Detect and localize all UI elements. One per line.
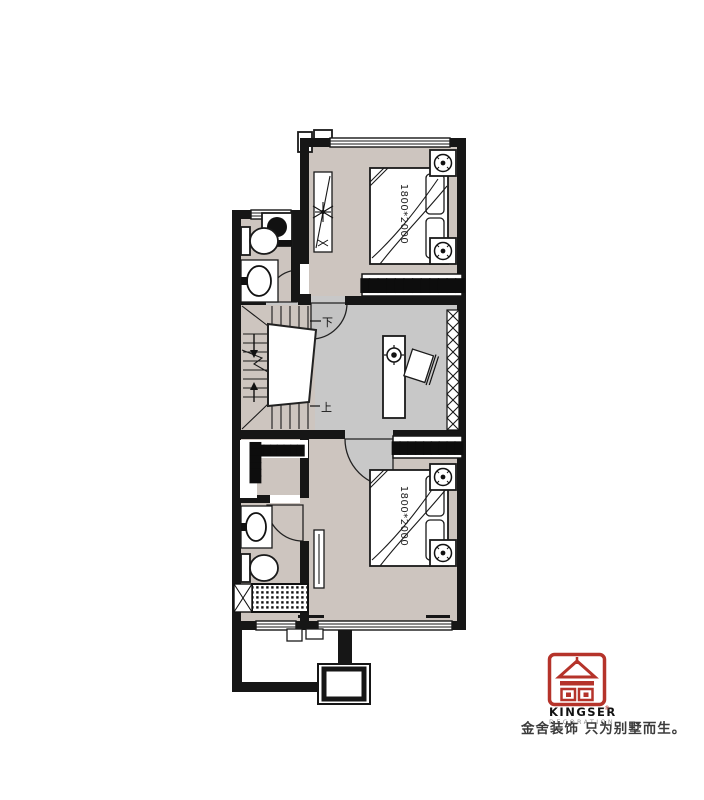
toilet-bottom [241, 554, 278, 582]
stair-down-label: 下 [322, 316, 333, 329]
tv-cabinet-bottom [314, 530, 324, 588]
shower [252, 584, 308, 612]
sink-bottom [241, 506, 272, 548]
terrace-step-1 [287, 629, 302, 641]
desk [383, 336, 405, 418]
kingser-emblem-icon [550, 655, 605, 705]
svg-text:████████████: ████████████ [359, 278, 465, 294]
sink-top [241, 260, 278, 302]
bed-top-size-label: 1800*2000 [398, 184, 409, 244]
nightstand-top-1 [430, 150, 456, 176]
nightstand-top-2 [430, 238, 456, 264]
terrace [287, 629, 370, 704]
stair-void [268, 324, 316, 406]
brand-tagline: 金舍装饰 只为别墅而生。 [520, 720, 686, 737]
terrace-step-2 [306, 629, 323, 639]
nightstand-bottom-1 [430, 464, 456, 490]
svg-text:█████████: █████████ [391, 441, 464, 455]
closet-label-vertical: ██████ [249, 441, 262, 483]
planter-box [318, 664, 370, 704]
room-label-top: ████████████ [359, 274, 465, 296]
nightstand-bottom-2 [430, 540, 456, 566]
bed-bottom-size-label: 1800*2000 [398, 486, 409, 546]
toilet-top [241, 227, 278, 255]
terrace-bottom-wall [232, 682, 324, 692]
brand-logo: KINGSER ® DECORATION 金舍装饰 只为别墅而生。 [520, 655, 686, 738]
radiator [447, 310, 459, 430]
window-top [330, 138, 450, 147]
room-label-bottom: █████████ [391, 436, 464, 458]
stair-up-label: 上 [321, 401, 332, 414]
vent-window [234, 584, 252, 612]
tv-cabinet-top [313, 172, 333, 252]
brand-registered-mark: ® [604, 705, 610, 712]
floor-plan-page: 下 上 [0, 0, 704, 800]
window-bottom-right [318, 621, 452, 630]
